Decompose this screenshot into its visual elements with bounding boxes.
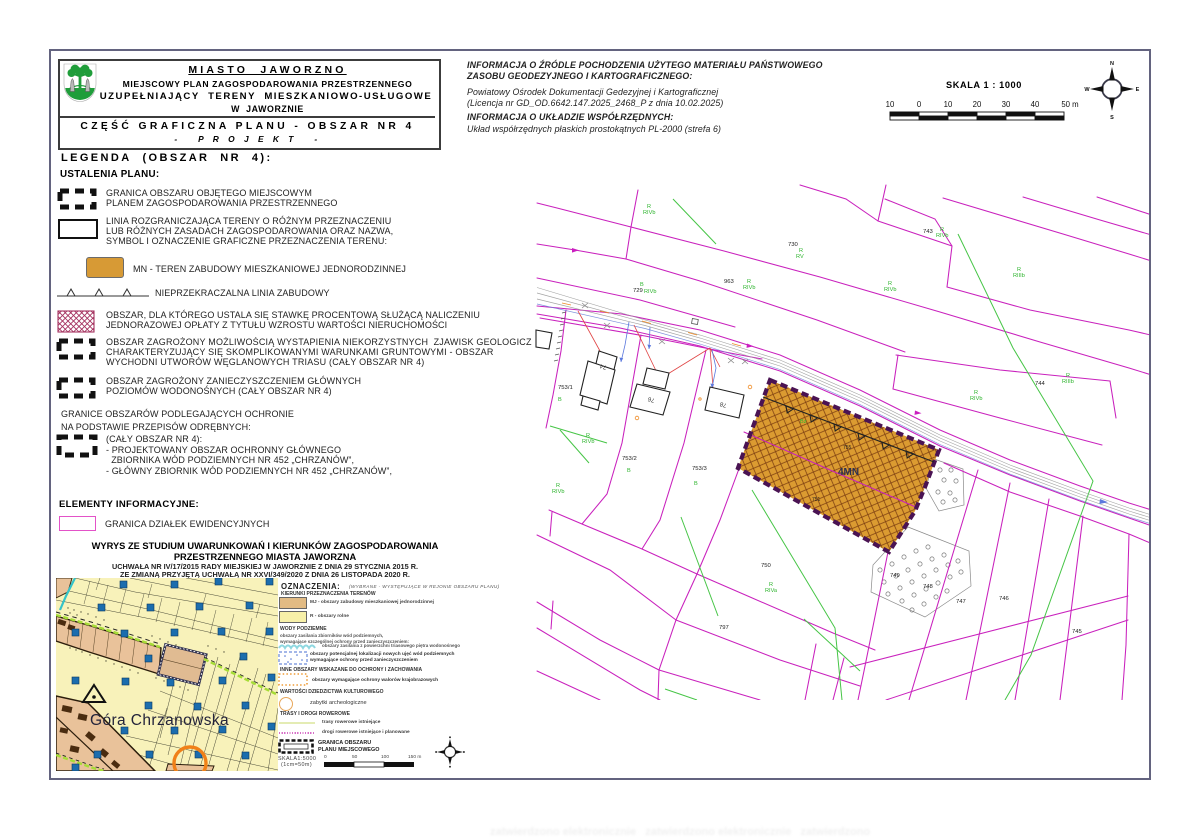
svg-text:E: E	[1136, 87, 1140, 93]
svg-text:751: 751	[812, 497, 821, 503]
svg-text:RIVb: RIVb	[743, 285, 755, 291]
svg-text:RIVb: RIVb	[644, 289, 656, 295]
svg-text:RIVb: RIVb	[970, 396, 982, 402]
svg-text:RIVa: RIVa	[765, 588, 778, 594]
svg-text:B: B	[558, 397, 562, 403]
svg-text:963: 963	[724, 279, 735, 285]
svg-text:748: 748	[923, 584, 934, 590]
svg-text:0: 0	[917, 100, 922, 109]
svg-text:50: 50	[352, 754, 358, 760]
svg-text:RIVb: RIVb	[643, 210, 655, 216]
svg-text:10: 10	[886, 100, 895, 109]
svg-text:RIVb: RIVb	[552, 489, 564, 495]
svg-text:B: B	[694, 481, 698, 487]
svg-text:755: 755	[843, 445, 852, 451]
svg-text:RIVb: RIVb	[884, 287, 896, 293]
svg-text:744: 744	[1035, 381, 1046, 387]
svg-text:W: W	[1084, 87, 1090, 93]
svg-text:20: 20	[973, 100, 982, 109]
svg-text:750: 750	[761, 563, 772, 569]
svg-text:RIIIb: RIIIb	[1013, 273, 1025, 279]
svg-text:30: 30	[1002, 100, 1011, 109]
svg-text:753/2: 753/2	[622, 456, 637, 462]
svg-text:729: 729	[633, 288, 643, 294]
svg-text:743: 743	[923, 229, 934, 235]
svg-text:797: 797	[719, 625, 729, 631]
svg-text:B: B	[627, 468, 631, 474]
svg-text:50 m: 50 m	[1061, 100, 1078, 109]
svg-text:RIIIb: RIIIb	[1062, 379, 1074, 385]
svg-text:746: 746	[999, 596, 1010, 602]
svg-text:753/3: 753/3	[692, 466, 707, 472]
svg-text:745: 745	[1072, 629, 1083, 635]
svg-text:10: 10	[944, 100, 953, 109]
svg-text:749: 749	[890, 573, 900, 579]
svg-text:730: 730	[788, 242, 799, 248]
svg-text:0: 0	[324, 754, 327, 760]
svg-text:100: 100	[381, 754, 389, 760]
svg-text:747: 747	[956, 599, 966, 605]
svg-text:Bz: Bz	[800, 419, 807, 425]
svg-text:RV: RV	[796, 254, 804, 260]
svg-text:4MN: 4MN	[838, 467, 859, 478]
svg-text:S: S	[1110, 115, 1114, 120]
svg-text:N: N	[1110, 61, 1114, 67]
svg-text:RIVb: RIVb	[582, 439, 594, 445]
svg-text:40: 40	[1031, 100, 1040, 109]
svg-text:Góra Chrzanowska: Góra Chrzanowska	[90, 712, 229, 729]
svg-text:RIVb: RIVb	[936, 233, 948, 239]
svg-text:150 m: 150 m	[408, 754, 421, 760]
svg-text:B: B	[640, 282, 644, 288]
svg-text:753/1: 753/1	[558, 385, 573, 391]
